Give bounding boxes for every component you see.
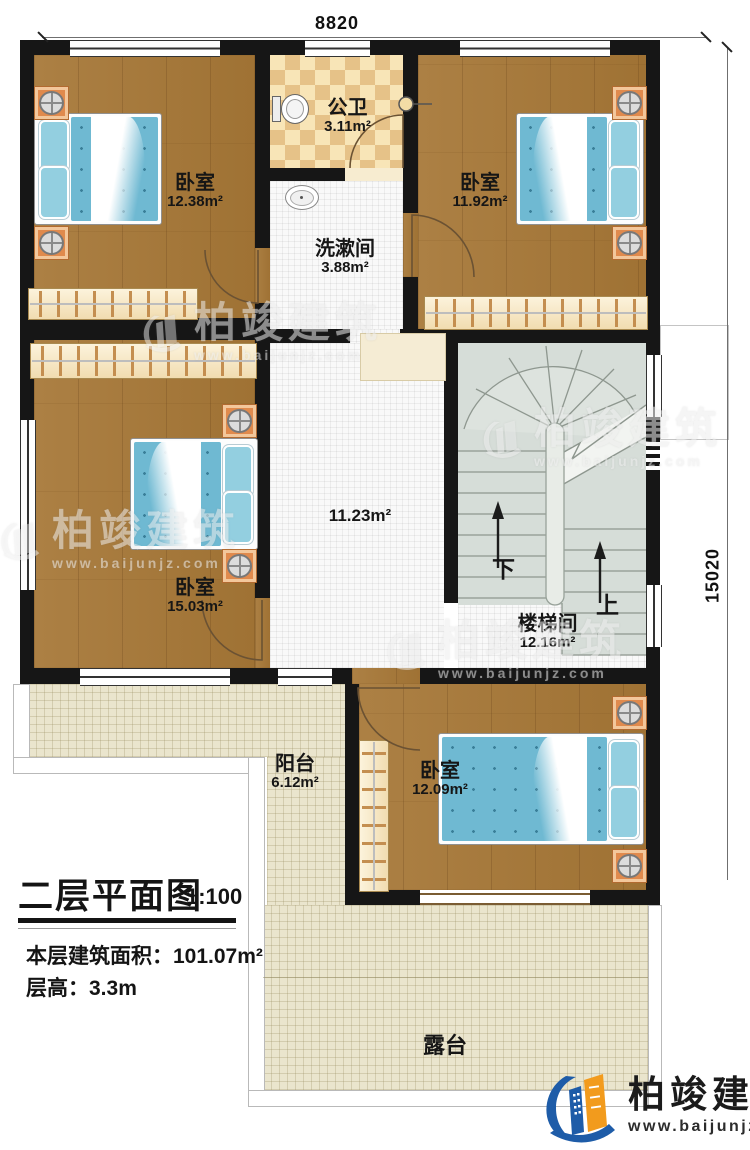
lamp-icon [39,231,64,255]
plan-scale: 1:100 [186,884,242,910]
room-name: 洗漱间 [295,238,395,260]
wall [590,890,660,905]
room-label-balcony: 阳台 6.12m² [250,753,340,792]
room-area: 6.12m² [250,775,340,792]
lamp-icon [617,91,642,115]
room-label-bedroom-top-right: 卧室 11.92m² [415,172,545,211]
terrace-parapet-left [248,757,265,1107]
window [646,355,662,417]
nightstand [222,404,257,438]
nightstand [612,696,647,730]
window [646,585,662,647]
pillow [39,166,69,218]
bed-sheet [533,736,587,842]
room-label-bedroom-bottom: 卧室 12.09m² [380,760,500,799]
wardrobe [28,288,198,320]
pillow [609,166,639,218]
lamp-icon [617,854,642,878]
room-area: 3.88m² [295,260,395,277]
floor-plan-page: 卧室 12.38m² 公卫 3.11m² 洗漱间 3.88m² 卧室 11.92… [0,0,750,1150]
room-label-bedroom-top-left: 卧室 12.38m² [130,172,260,211]
room-area: 3.11m² [300,119,395,136]
brand-url: www.baijunjz.com [628,1118,750,1136]
bed [130,438,258,550]
door-gap [345,168,403,181]
door-gap [255,598,270,668]
sliding-window [420,893,590,905]
pillow [609,786,639,838]
floor-area-text: 本层建筑面积：101.07m² [26,940,263,970]
room-name: 公卫 [300,97,395,119]
wall [270,168,345,181]
wall [20,668,80,684]
wall [20,318,255,340]
dimension-top-value: 8820 [315,13,359,34]
room-label-terrace: 露台 [400,1034,490,1059]
nightstand [34,86,69,120]
wall [420,668,646,684]
wall [345,684,359,905]
lamp-icon [617,231,642,255]
sink-icon [285,185,319,210]
title-rule-thin [18,928,236,929]
room-area: 15.03m² [135,599,255,616]
lamp-icon [617,701,642,725]
dimension-line-top [42,37,706,38]
window [278,668,332,686]
wall [646,40,660,905]
room-label-bedroom-mid-left: 卧室 15.03m² [135,577,255,616]
wardrobe [424,296,648,330]
door-gap [403,213,418,277]
room-area: 12.16m² [470,635,625,652]
plan-title: 二层平面图 [18,868,203,919]
door-gap [352,668,420,684]
lamp-icon [227,554,252,578]
brand-name: 柏竣建筑 [628,1076,750,1113]
room-area: 11.92m² [415,194,545,211]
pillow [223,445,253,497]
door-gap [255,248,270,303]
nightstand [612,86,647,120]
wall [255,329,350,343]
nightstand [612,849,647,883]
room-area: 12.38m² [130,194,260,211]
balcony-floor [28,684,345,757]
wardrobe [30,343,257,379]
brand-logo-icon [534,1066,622,1146]
wall [345,890,420,905]
room-area: 12.09m² [380,782,500,799]
rug [360,333,446,381]
stairs-down-label: 下 [492,550,515,584]
pillow [223,491,253,543]
lamp-icon [39,91,64,115]
window [305,40,370,57]
room-label-washroom: 洗漱间 3.88m² [295,238,395,277]
title-rule [18,918,236,923]
wall [444,343,458,603]
room-name: 卧室 [380,760,500,782]
terrace-floor [263,905,648,1092]
bed-sheet [147,441,201,547]
wall [255,55,270,248]
vent-louvre [646,438,660,472]
balcony-parapet-bottom [13,757,265,774]
roof-outline [660,325,729,440]
nightstand [34,226,69,260]
floor-height-text: 层高：3.3m [26,972,137,1002]
room-name: 卧室 [135,577,255,599]
window [80,668,230,686]
room-name: 阳台 [250,753,340,775]
room-area: 11.23m² [300,506,420,525]
nightstand [612,226,647,260]
room-label-public-bathroom: 公卫 3.11m² [300,97,395,136]
window [460,40,610,57]
room-label-hallway: 11.23m² [300,506,420,525]
dimension-right-value: 15020 [703,531,724,621]
room-name: 卧室 [415,172,545,194]
brand-logo: 柏竣建筑 www.baijunjz.com [534,1066,750,1146]
lamp-icon [227,409,252,433]
terrace-seam [263,977,648,978]
window [70,40,220,57]
pillow [39,120,69,172]
room-name: 卧室 [130,172,260,194]
window [20,420,36,590]
pillow [609,120,639,172]
pillow [609,740,639,792]
room-name: 露台 [400,1034,490,1059]
dimension-line-right [727,48,728,880]
stairs-up-label: 上 [596,586,619,620]
